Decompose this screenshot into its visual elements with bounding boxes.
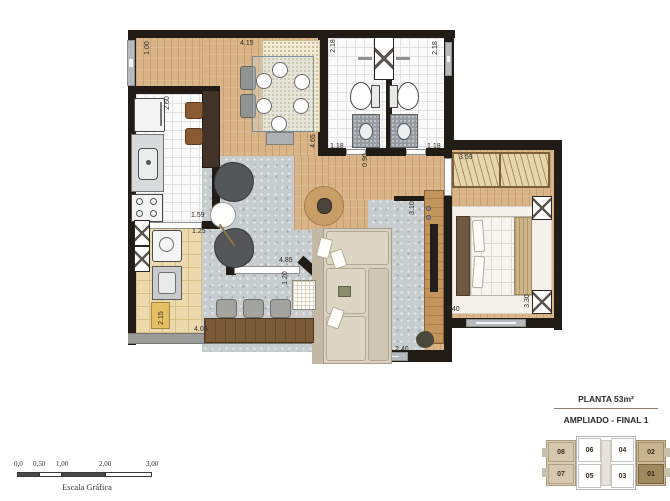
terrace-stool [216,299,237,318]
bar-stool [185,102,203,119]
scale-tick: 2,00 [99,460,111,468]
wall-living-bedroom-2 [444,196,452,362]
keyplan-tab [665,468,670,477]
towel-bar [396,57,410,60]
keyplan-unit-06: 06 [578,438,601,462]
keyplan-unit-07: 07 [548,464,574,484]
dining-chair [256,73,272,89]
utility-cabinet [151,302,170,329]
vanity-basin [359,123,373,140]
keyplan-tab [542,468,547,477]
wall-top [128,30,455,38]
scale-segment [62,472,105,477]
wall-bath-bottom-1 [318,148,346,156]
entry-window [127,40,135,86]
dining-chair [256,98,272,114]
wall-right [554,140,562,330]
stove-burner [150,198,157,205]
floor-plan: 1.004.152.182.182.604.651.181.180.903.59… [0,0,670,501]
washing-machine-door [159,237,174,252]
floor-lamp-shade [210,202,236,228]
wall-bedroom-top [444,140,562,150]
stove-burner [150,210,157,217]
scale-segment [17,472,39,477]
keyplan-unit-03: 03 [611,464,634,488]
keyplan-unit-05: 05 [578,464,601,488]
nightstand [532,196,552,220]
terrace-counter [204,318,314,343]
wardrobe [452,152,550,188]
refrigerator-handle [160,102,162,126]
terrace-slider-door [234,266,300,274]
terrace-stool [270,299,291,318]
bar-stool [185,128,203,145]
wardrobe-divider [499,153,501,187]
nightstand [532,290,552,314]
bath1-door [346,149,366,155]
service-shaft [134,220,150,246]
sofa-arm [368,268,389,361]
service-door [148,222,202,229]
keyplan-unit-08: 08 [548,442,574,462]
bed-pillow [472,220,485,253]
bath2-window [445,42,452,76]
armchair [214,162,254,202]
keyplan-tab [542,448,547,457]
stove-burner [136,198,143,205]
bath2-door [406,149,426,155]
tv [430,224,438,292]
legend-subtitle: AMPLIADO - FINAL 1 [546,415,666,425]
service-shaft [134,246,150,272]
stove [131,194,163,222]
toilet [397,82,419,110]
key-plan: 08 07 06 04 05 03 02 01 [546,432,666,492]
sofa-tray [338,286,351,297]
kitchen-faucet [146,160,151,165]
shower-stall [374,37,394,80]
bed-pillow [472,256,485,289]
keyplan-unit-04: 04 [611,438,634,462]
bedroom-door [444,158,452,196]
keyplan-unit-02: 02 [638,442,664,462]
scale-tick: 3,00 [146,460,158,468]
keyplan-core [601,440,611,486]
bed-throw-blanket [514,217,532,295]
scale-segment [39,472,62,477]
toilet [350,82,372,110]
scale-tick: 0,50 [33,460,45,468]
bed-headboard [456,216,470,296]
legend-divider [554,408,658,409]
legend-title: PLANTA 53m² [546,394,666,404]
keyplan-tab [665,448,670,457]
scale-tick: 1,00 [56,460,68,468]
wall-bath-bottom-2 [366,148,406,156]
terrace-stool [243,299,264,318]
wall-living-bedroom [444,150,452,158]
coffee-table [317,198,332,214]
toilet-tank [389,85,398,108]
wall-sconce [426,215,431,220]
toilet-tank [371,85,380,108]
dining-chair [293,98,309,114]
scale-label: Escala Gráfica [37,482,137,492]
dining-chair [272,62,288,78]
wall-sconce [426,206,431,211]
keyplan-unit-01-highlighted: 01 [638,464,664,484]
dining-chair [294,74,310,90]
scale-tick: 0,0 [14,460,23,468]
bedroom-window [466,319,526,327]
laundry-basin [158,272,176,294]
towel-bar [358,57,372,60]
scale-segment [105,472,152,477]
plant-icon [416,331,434,348]
legend: PLANTA 53m² AMPLIADO - FINAL 1 08 07 06 … [546,390,666,498]
stove-burner [136,210,143,217]
armchair [214,228,254,268]
terrace-table [292,280,316,310]
dining-chair [271,116,287,132]
bar-counter [202,90,220,168]
scale-bar: 0,0 0,50 1,00 2,00 3,00 Escala Gráfica [12,460,182,498]
dining-console [266,132,294,145]
vanity-basin [397,123,411,140]
